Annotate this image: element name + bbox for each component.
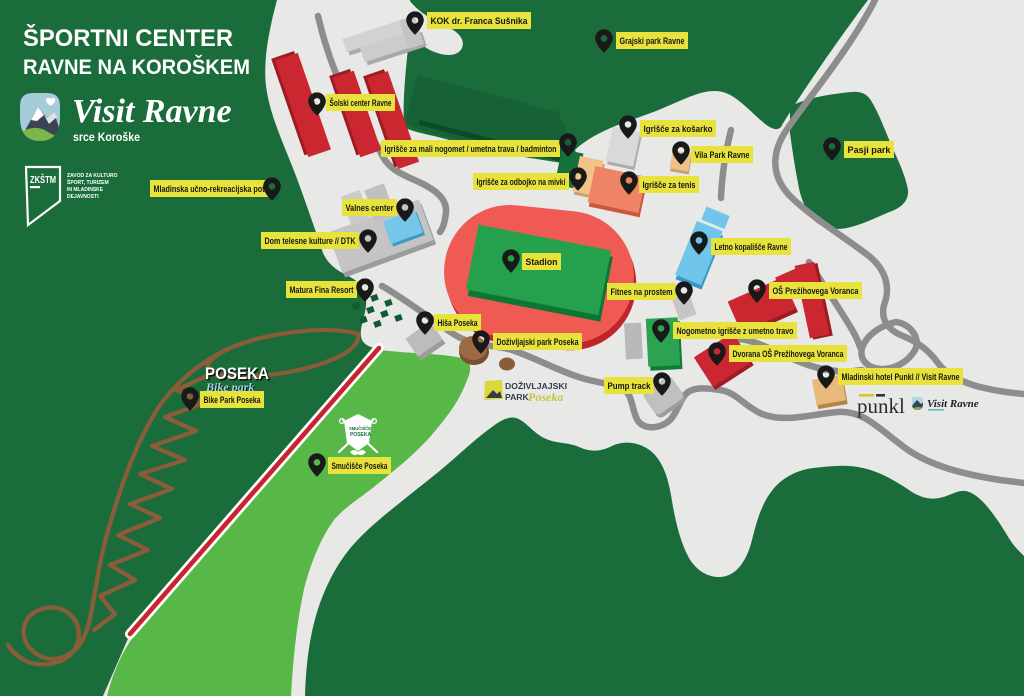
svg-text:Pump track: Pump track — [608, 381, 652, 391]
svg-text:Igrišče za odbojko na mivki: Igrišče za odbojko na mivki — [477, 177, 566, 187]
svg-text:PARK: PARK — [505, 392, 530, 402]
svg-text:ŠPORT, TURIZEM: ŠPORT, TURIZEM — [67, 178, 109, 186]
svg-text:IN MLADINSKE: IN MLADINSKE — [67, 187, 104, 193]
svg-text:SMUČIŠČE: SMUČIŠČE — [349, 426, 371, 431]
svg-text:Igrišče za mali nogomet / umet: Igrišče za mali nogomet / umetna trava /… — [385, 144, 557, 154]
svg-text:Visit Ravne: Visit Ravne — [927, 398, 979, 410]
svg-text:Mladinska učno-rekreacijska po: Mladinska učno-rekreacijska pot — [154, 184, 265, 194]
svg-text:Pasji park: Pasji park — [848, 145, 892, 155]
svg-text:Mladinski hotel Punkl // Visit: Mladinski hotel Punkl // Visit Ravne — [842, 372, 960, 382]
svg-text:Letno kopališče Ravne: Letno kopališče Ravne — [715, 242, 788, 252]
svg-text:Dom telesne kulture // DTK: Dom telesne kulture // DTK — [265, 236, 356, 246]
svg-text:srce Koroške: srce Koroške — [73, 130, 140, 144]
svg-text:RAVNE NA KOROŠKEM: RAVNE NA KOROŠKEM — [23, 54, 250, 79]
svg-text:Poseka: Poseka — [528, 390, 563, 404]
svg-text:Šolski center Ravne: Šolski center Ravne — [330, 97, 392, 108]
svg-text:Igrišče za tenis: Igrišče za tenis — [643, 180, 696, 190]
svg-text:Visit Ravne: Visit Ravne — [72, 93, 232, 130]
svg-text:Matura Fina Resort: Matura Fina Resort — [290, 285, 354, 295]
svg-text:punkl: punkl — [857, 394, 905, 418]
svg-text:Stadion: Stadion — [526, 257, 558, 267]
svg-text:Bike Park Poseka: Bike Park Poseka — [204, 395, 262, 405]
svg-text:ŠPORTNI CENTER: ŠPORTNI CENTER — [23, 24, 233, 52]
svg-text:Grajski park Ravne: Grajski park Ravne — [620, 36, 685, 46]
svg-text:Igrišče za košarko: Igrišče za košarko — [644, 124, 713, 134]
svg-text:ZKŠTM: ZKŠTM — [30, 173, 56, 186]
svg-text:Nogometno igrišče z umetno tra: Nogometno igrišče z umetno travo — [677, 326, 794, 336]
svg-text:Vila Park Ravne: Vila Park Ravne — [695, 150, 750, 160]
svg-text:ZAVOD ZA KULTURO: ZAVOD ZA KULTURO — [67, 173, 118, 179]
svg-text:KOK dr. Franca Sušnika: KOK dr. Franca Sušnika — [431, 16, 529, 26]
svg-text:Doživljajski park Poseka: Doživljajski park Poseka — [497, 337, 580, 347]
svg-text:DEJAVNOSTI: DEJAVNOSTI — [67, 194, 99, 200]
svg-text:Fitnes na prostem: Fitnes na prostem — [611, 287, 673, 297]
svg-text:Hiša Poseka: Hiša Poseka — [438, 318, 479, 328]
svg-text:POSEKA: POSEKA — [350, 432, 372, 438]
svg-text:Smučišče Poseka: Smučišče Poseka — [332, 461, 389, 471]
svg-text:Dvorana OŠ Prežihovega Voranca: Dvorana OŠ Prežihovega Voranca — [733, 348, 845, 359]
svg-text:OŠ Prežihovega Voranca: OŠ Prežihovega Voranca — [773, 285, 860, 296]
svg-text:Valnes center: Valnes center — [346, 203, 394, 213]
